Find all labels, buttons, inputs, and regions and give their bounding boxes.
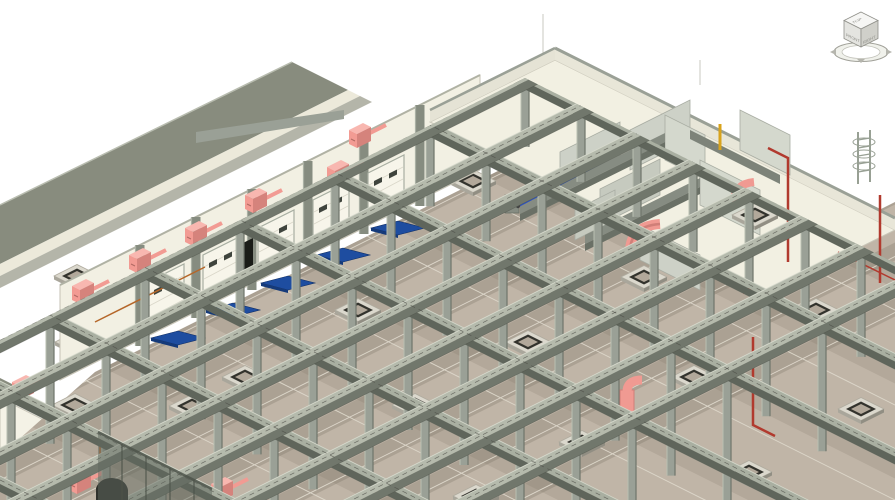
structural-column[interactable] — [818, 321, 826, 451]
viewcube-ring-inner — [842, 46, 880, 59]
bim-model-view[interactable]: TOP FRONT RIGHT — [0, 0, 895, 500]
viewcube-widget[interactable]: TOP FRONT RIGHT — [830, 12, 892, 63]
viewcube-ring-arrow-east[interactable] — [886, 49, 892, 55]
structural-column[interactable] — [387, 201, 395, 301]
ladder-rung — [858, 154, 870, 156]
viewcube-ring-arrow-west[interactable] — [830, 49, 836, 55]
3d-viewport[interactable]: TOP FRONT RIGHT — [0, 0, 895, 500]
roof-ladder[interactable] — [853, 130, 875, 184]
structural-column[interactable] — [723, 369, 731, 500]
ladder-cage — [853, 150, 875, 158]
